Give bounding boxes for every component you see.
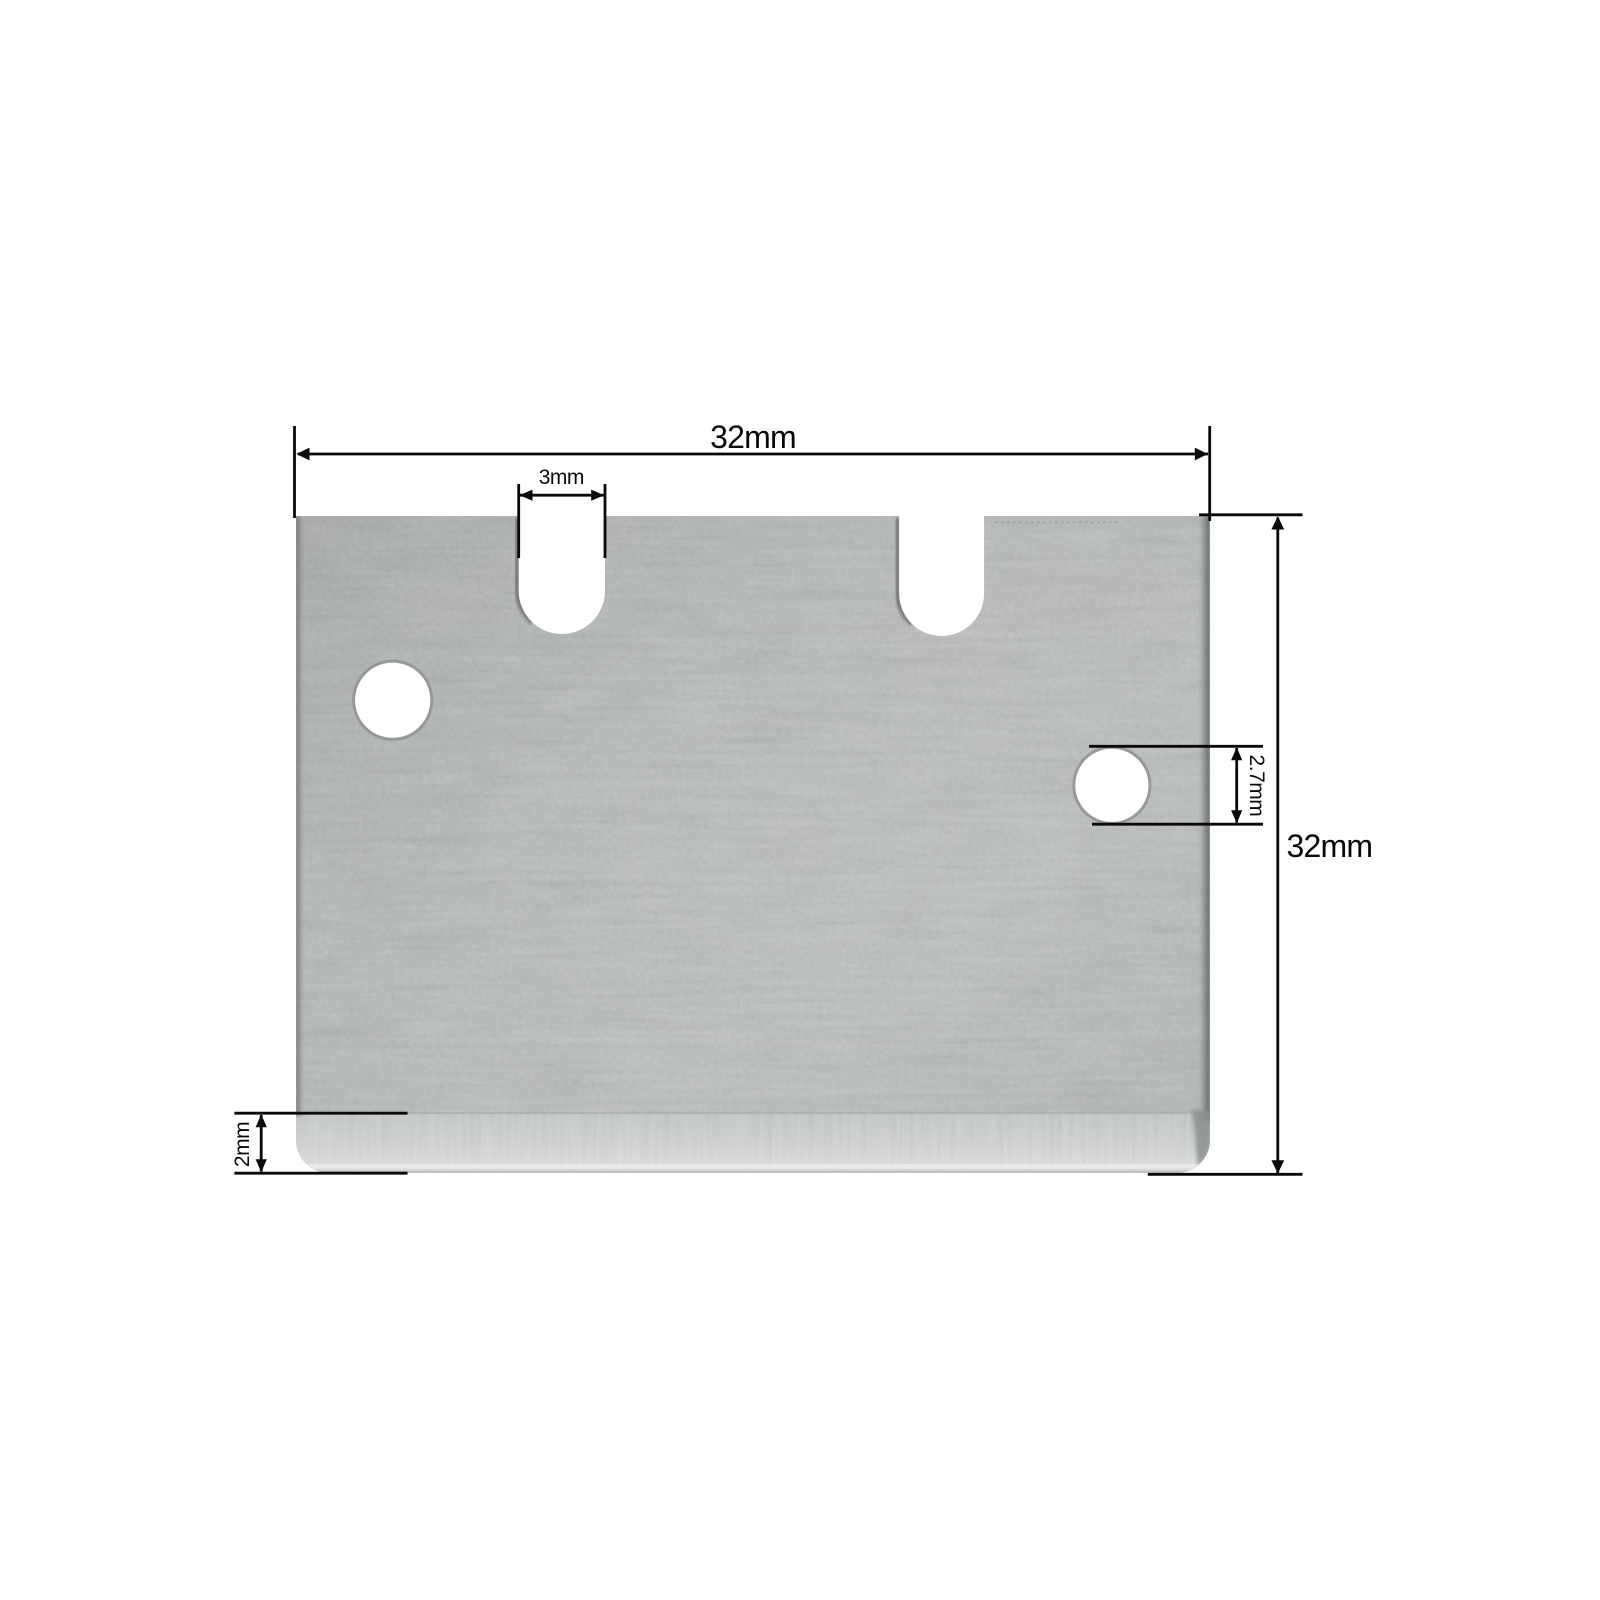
svg-text:32mm: 32mm [710, 419, 796, 455]
svg-text:32mm: 32mm [1287, 828, 1373, 864]
svg-text:2mm: 2mm [231, 1122, 254, 1167]
svg-text:2.7mm: 2.7mm [1245, 755, 1268, 817]
svg-text:3mm: 3mm [539, 466, 584, 489]
